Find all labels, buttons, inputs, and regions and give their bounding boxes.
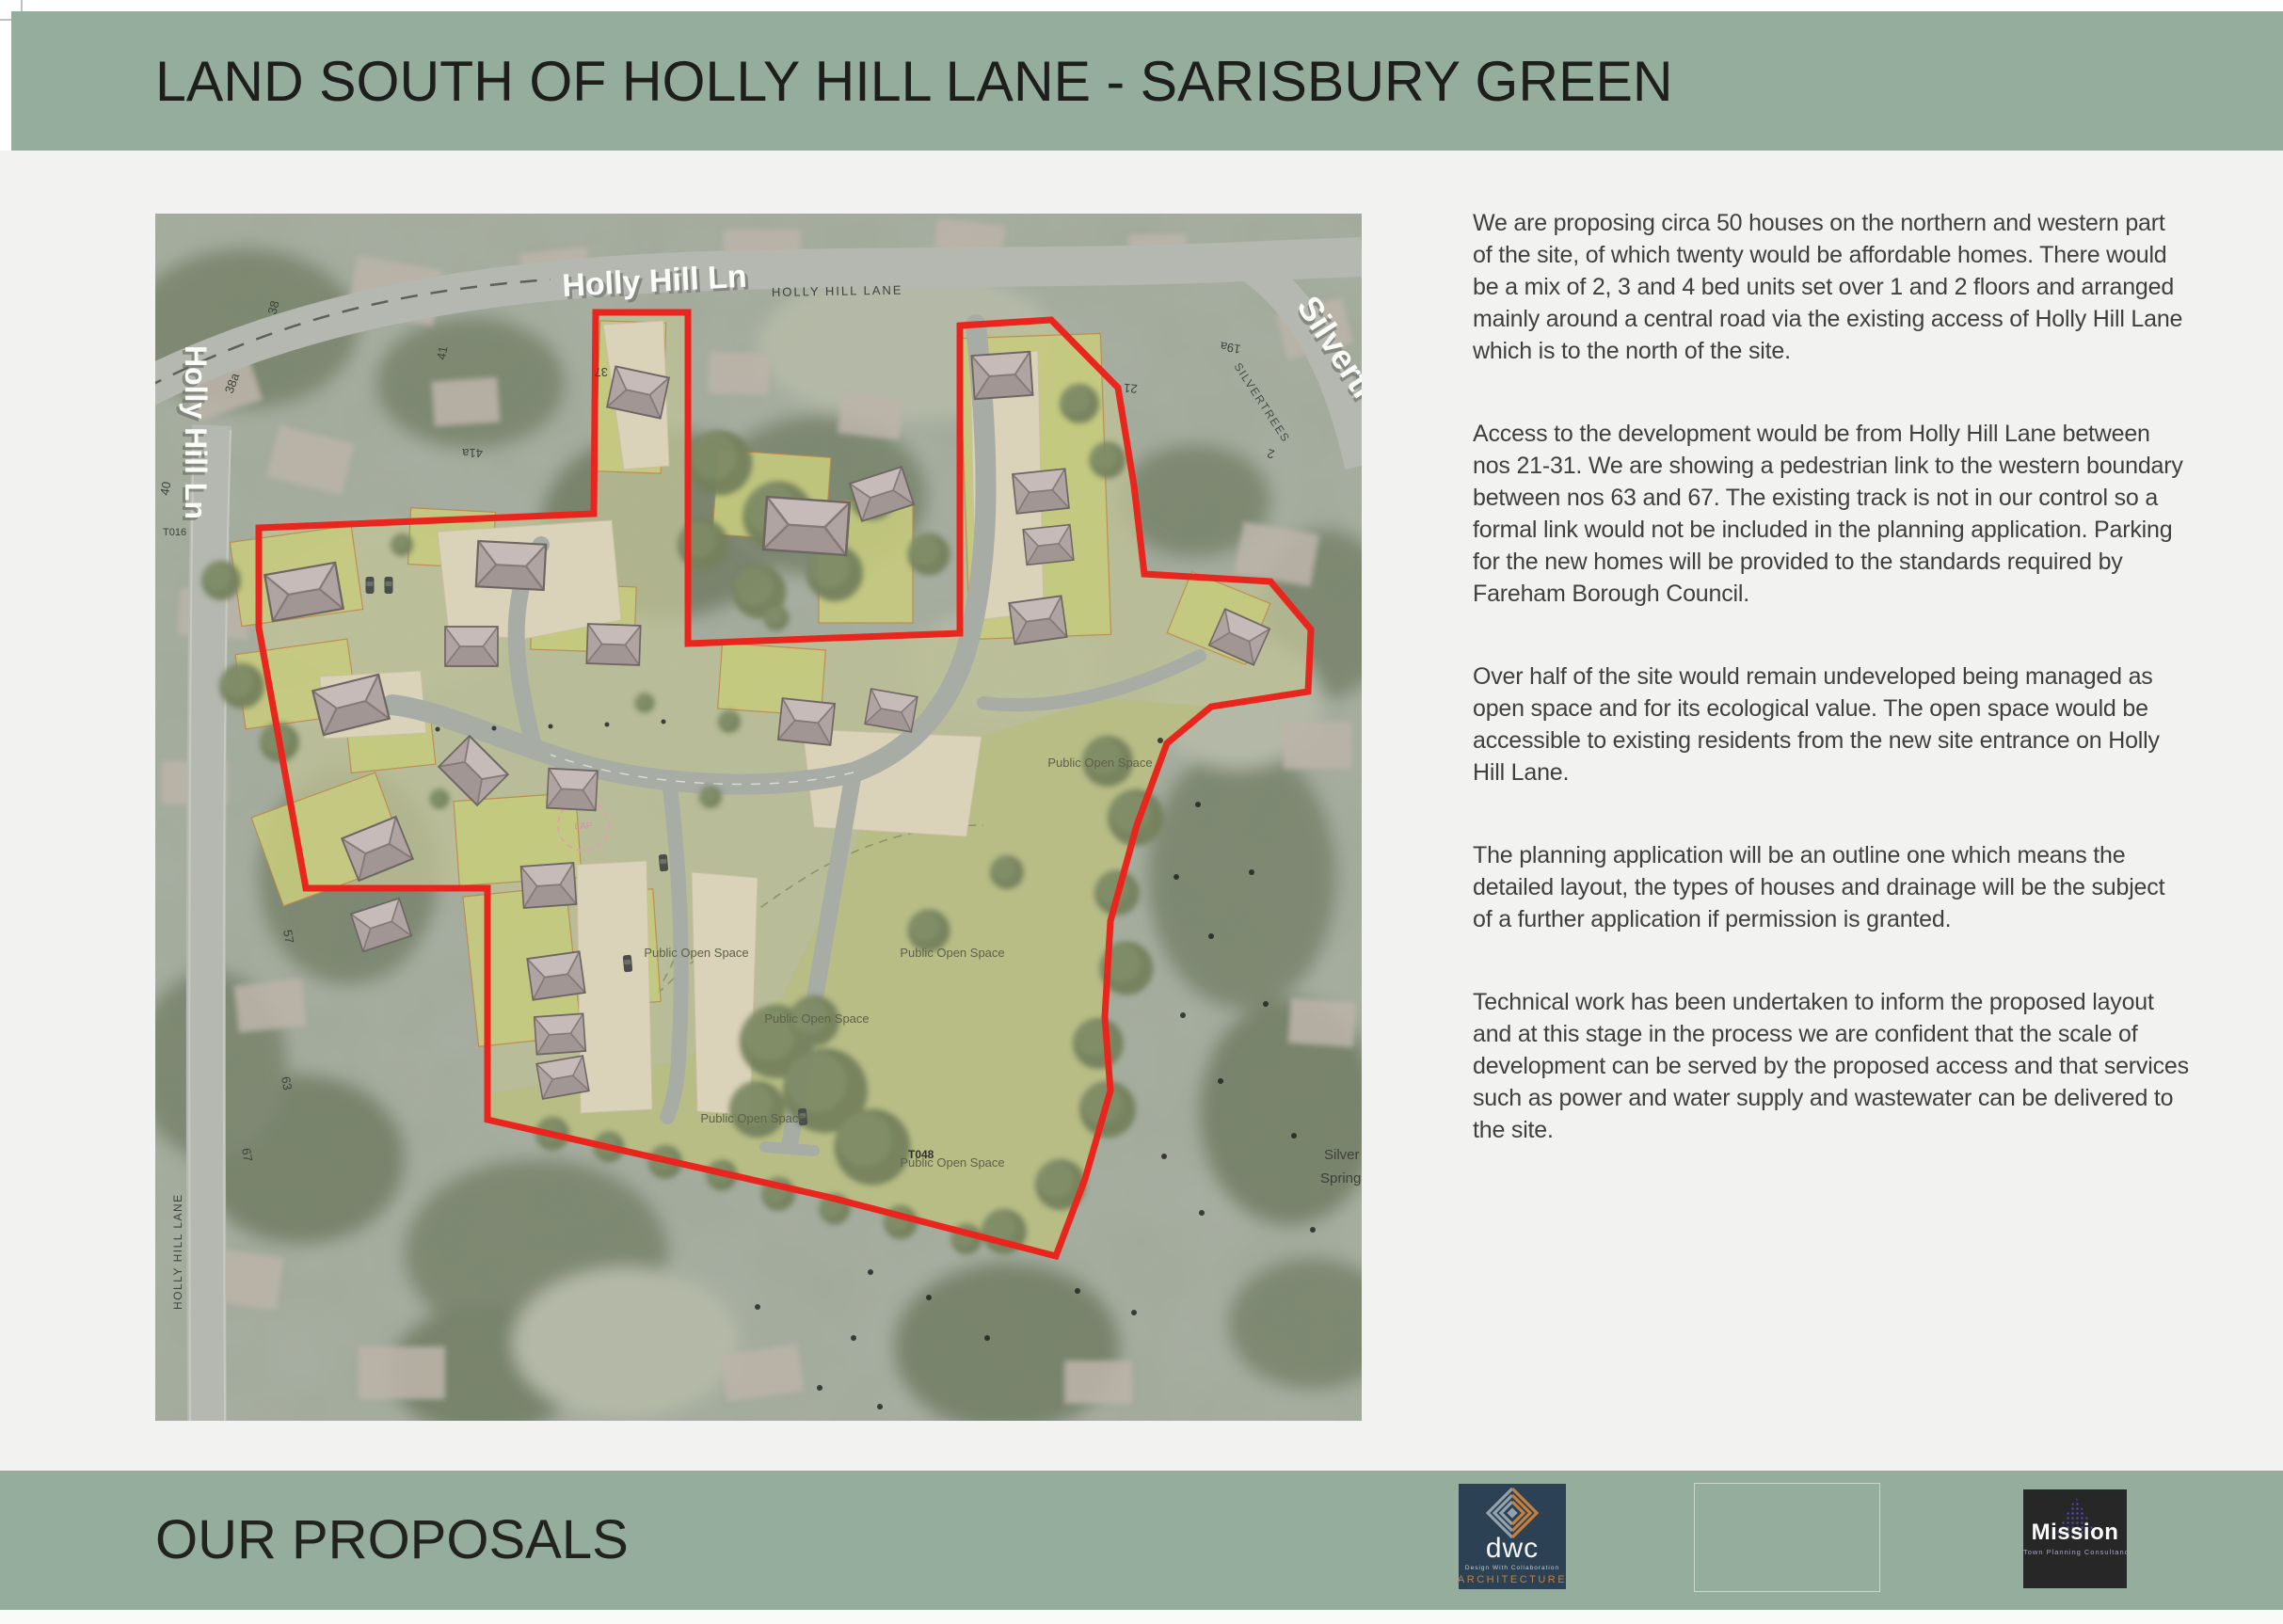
crop-mark-top <box>21 0 23 11</box>
dwc-architecture-logo: dwc Design With Collaboration ARCHITECTU… <box>1459 1484 1566 1589</box>
svg-text:63: 63 <box>279 1075 295 1091</box>
svg-text:Holly Hill Ln: Holly Hill Ln <box>179 345 213 519</box>
proposal-paragraph: Access to the development would be from … <box>1473 418 2190 610</box>
mission-logo-name: Mission <box>2023 1520 2127 1546</box>
section-title: OUR PROPOSALS <box>155 1471 629 1610</box>
logo-placeholder-box <box>1694 1483 1880 1592</box>
proposal-text-column: We are proposing circa 50 houses on the … <box>1473 207 2190 1197</box>
proposal-paragraph: Over half of the site would remain undev… <box>1473 661 2190 788</box>
site-plan-map: Holly Hill Ln Holly Hill Ln HOLLY HILL L… <box>155 214 1362 1421</box>
tree-tag-t048: T048 <box>908 1148 934 1161</box>
mission-logo-tagline: Town Planning Consultancy <box>2023 1548 2127 1556</box>
content-area: Holly Hill Ln Holly Hill Ln HOLLY HILL L… <box>0 151 2283 1471</box>
dwc-logo-name: dwc <box>1486 1535 1539 1563</box>
svg-text:41a: 41a <box>462 446 483 460</box>
svg-text:41: 41 <box>434 345 450 361</box>
open-space-label: Public Open Space <box>700 1111 805 1125</box>
proposal-paragraph: We are proposing circa 50 houses on the … <box>1473 207 2190 367</box>
page-title: LAND SOUTH OF HOLLY HILL LANE - SARISBUR… <box>155 49 1673 114</box>
header-band: LAND SOUTH OF HOLLY HILL LANE - SARISBUR… <box>11 11 2283 151</box>
proposal-paragraph: Technical work has been undertaken to in… <box>1473 986 2190 1146</box>
svg-text:37: 37 <box>595 365 608 379</box>
open-space-label: Public Open Space <box>764 1011 869 1026</box>
tree-tag-t016: T016 <box>163 527 186 538</box>
crop-mark-left <box>0 19 11 21</box>
road-label-holly-hill-ln-left: Holly Hill Ln Holly Hill Ln <box>176 345 213 522</box>
footer-band: OUR PROPOSALS dwc Design With Collaborat… <box>0 1471 2283 1610</box>
dwc-chevron-icon <box>1459 1484 1566 1538</box>
open-space-label: Public Open Space <box>1047 756 1152 770</box>
dwc-logo-field: ARCHITECTURE <box>1458 1574 1567 1585</box>
road-label-holly-hill-lane-small-left: HOLLY HILL LANE <box>171 1193 184 1310</box>
svg-text:21: 21 <box>1124 381 1139 396</box>
open-space-label: Public Open Space <box>900 946 1004 960</box>
label-silver-spring-2: Spring <box>1320 1170 1361 1186</box>
proposal-paragraph: The planning application will be an outl… <box>1473 839 2190 935</box>
svg-text:57: 57 <box>280 929 296 945</box>
svg-text:67: 67 <box>239 1147 255 1163</box>
svg-text:40: 40 <box>157 481 173 497</box>
mission-logo: Mission Town Planning Consultancy <box>2023 1489 2127 1588</box>
aerial-site-plan: Holly Hill Ln Holly Hill Ln HOLLY HILL L… <box>155 214 1362 1421</box>
lap-label: LAP <box>575 821 593 832</box>
open-space-label: Public Open Space <box>644 946 748 960</box>
label-silver-spring-1: Silver <box>1324 1147 1360 1163</box>
road-label-holly-hill-lane-small-top: HOLLY HILL LANE <box>772 283 903 299</box>
bottom-margin <box>0 1610 2283 1624</box>
dwc-logo-tagline: Design With Collaboration <box>1465 1565 1559 1571</box>
